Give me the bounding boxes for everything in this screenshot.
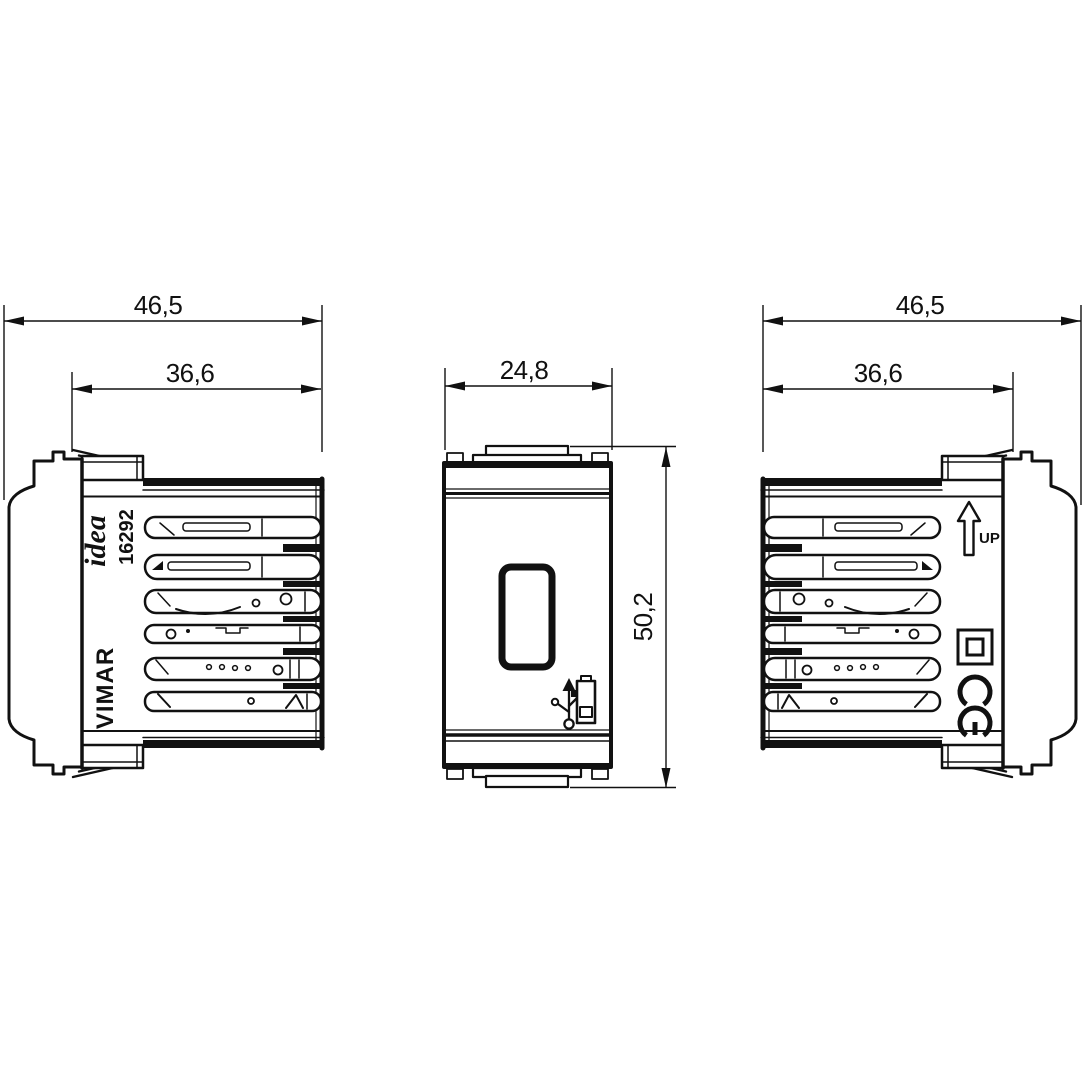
front-view [444,446,611,787]
right-side-view: UP [761,450,1076,777]
series-logo-text: idea [79,515,112,567]
technical-drawing-canvas: idea 16292 VIMAR 46,5 36,6 [0,0,1085,1085]
usb-charging-icon [552,676,595,729]
dim-left-overall-depth: 46,5 [134,290,183,320]
front-view-dimensions: 24,8 50,2 [445,355,676,788]
dim-right-overall-depth: 46,5 [896,290,945,320]
brand-text: VIMAR [92,647,119,729]
front-bottom-tab [486,776,568,787]
dim-right-recessed-depth: 36,6 [854,358,903,388]
dim-front-width: 24,8 [500,355,549,385]
dim-front-height: 50,2 [628,593,658,642]
usb-a-port [502,567,552,667]
up-label: UP [979,530,1000,547]
up-arrow-icon [958,502,980,555]
technical-drawing-page: idea 16292 VIMAR 46,5 36,6 [0,0,1085,1085]
double-insulation-icon [958,630,992,664]
article-number-text: 16292 [116,509,138,565]
ce-mark-icon [960,677,990,735]
left-side-view: idea 16292 VIMAR [9,450,324,777]
dim-left-recessed-depth: 36,6 [166,358,215,388]
